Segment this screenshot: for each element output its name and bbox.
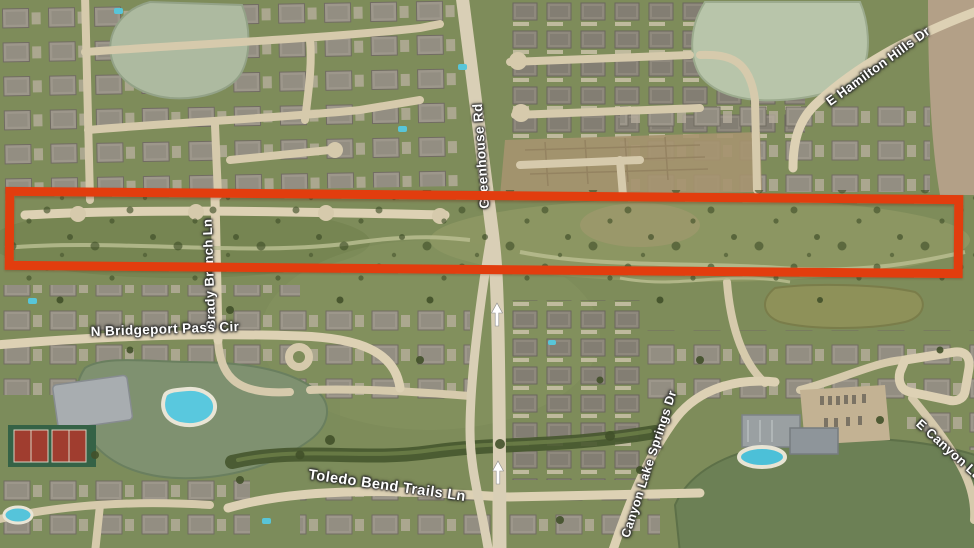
roundabout: [289, 347, 309, 367]
tennis-courts: [8, 425, 96, 467]
aerial-map-screenshot: Greenhouse Rd E Hamilton Hills Dr Brady …: [0, 0, 974, 548]
annotation-rectangle: [5, 187, 964, 278]
pond-mid-right: [765, 285, 923, 328]
